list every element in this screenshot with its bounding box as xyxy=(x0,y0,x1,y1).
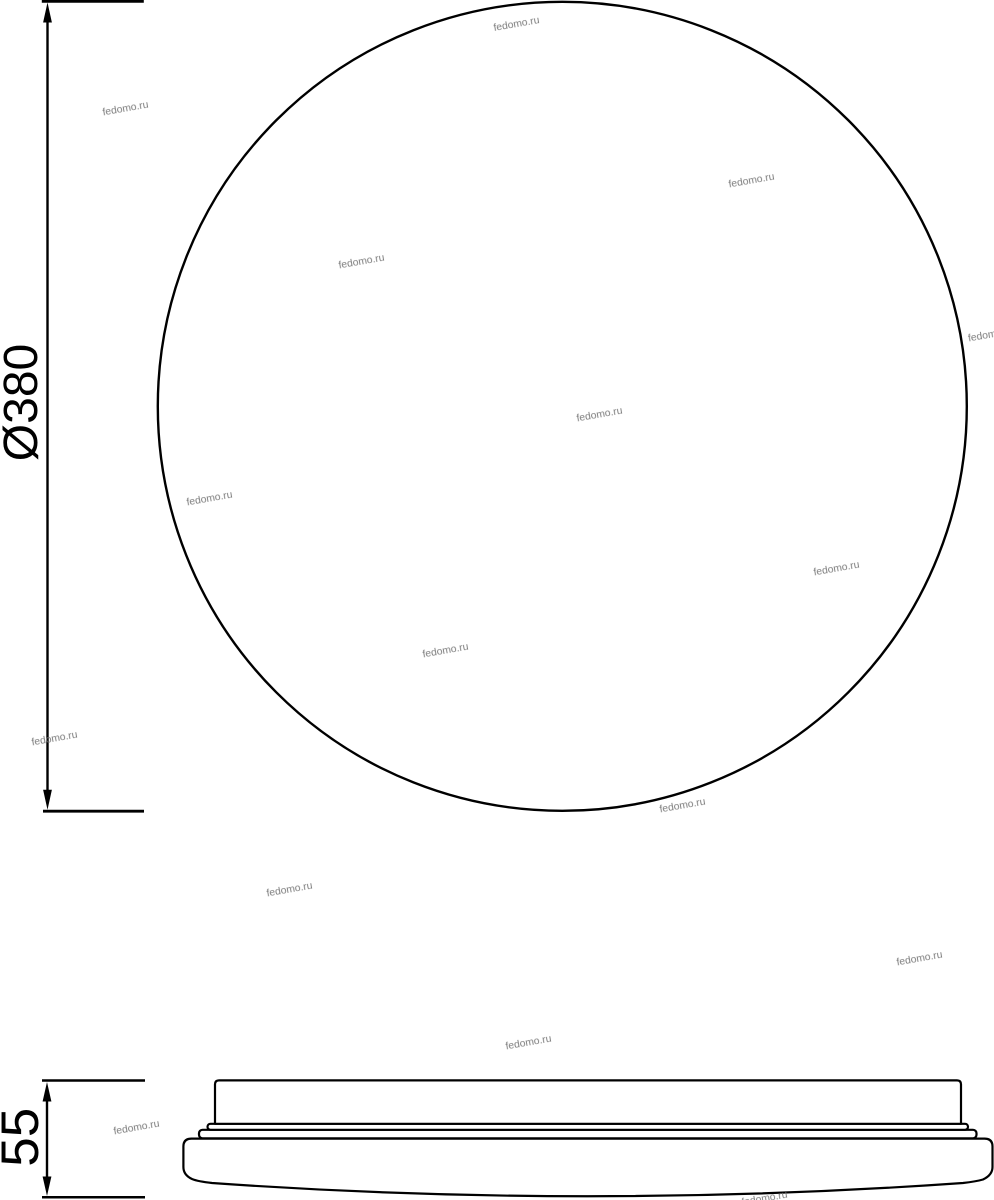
svg-text:55: 55 xyxy=(0,1108,50,1167)
svg-text:fedomo.ru: fedomo.ru xyxy=(505,1034,553,1053)
svg-text:fedomo.ru: fedomo.ru xyxy=(266,881,314,900)
svg-text:fedomo.ru: fedomo.ru xyxy=(659,797,707,816)
svg-text:fedomo.ru: fedomo.ru xyxy=(102,100,150,119)
svg-text:fedomo.ru: fedomo.ru xyxy=(967,326,994,345)
svg-text:fedomo.ru: fedomo.ru xyxy=(31,730,79,749)
svg-text:fedomo.ru: fedomo.ru xyxy=(896,950,944,969)
svg-text:fedomo.ru: fedomo.ru xyxy=(113,1119,161,1138)
svg-text:Ø380: Ø380 xyxy=(0,344,48,461)
